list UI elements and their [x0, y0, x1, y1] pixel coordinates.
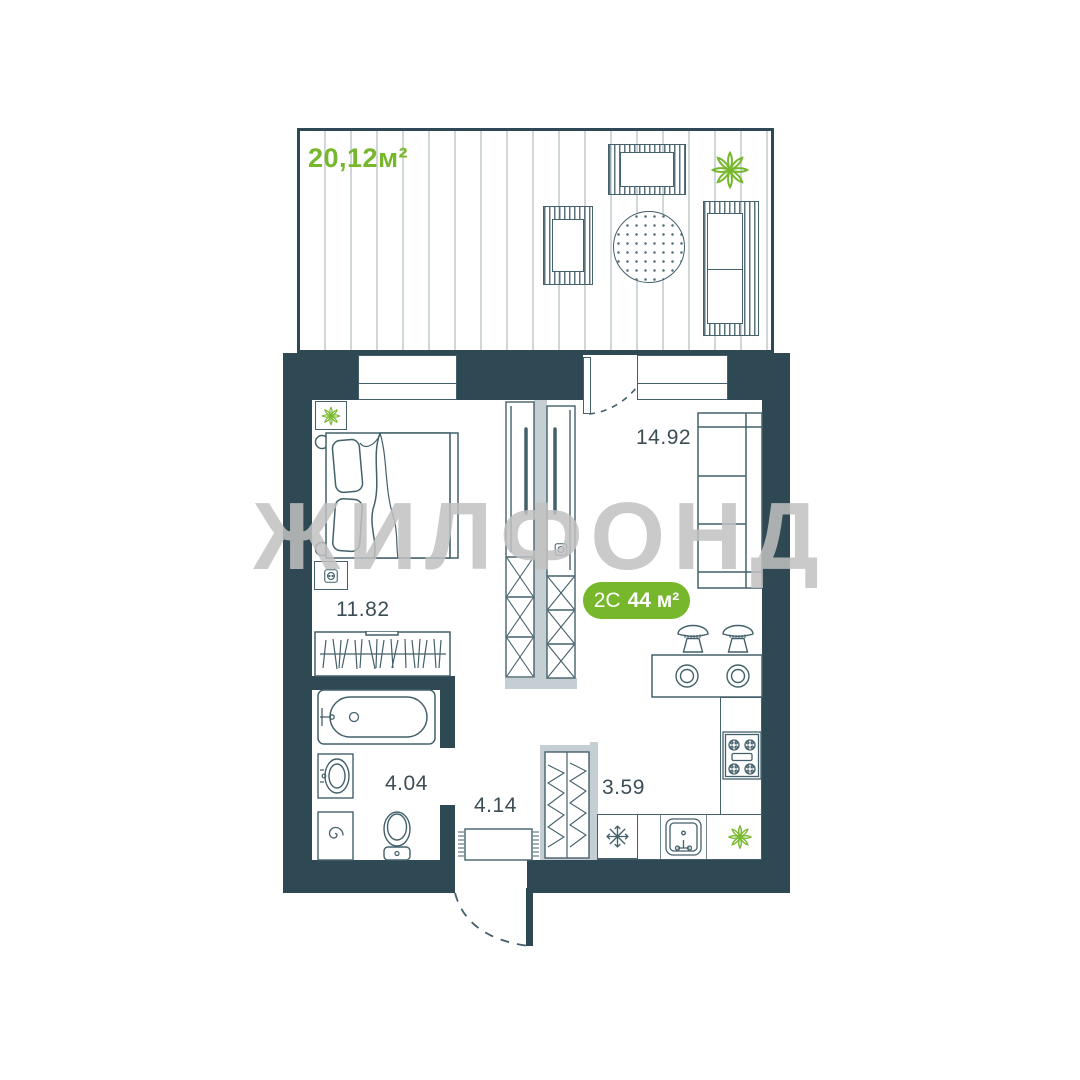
double-bed — [314, 429, 460, 562]
entrance-door-swing-arc — [437, 886, 537, 952]
toilet — [379, 808, 415, 862]
bathroom-area-label: 4.04 — [385, 772, 428, 796]
kitchen-bottom-counter — [597, 814, 762, 860]
washing-machine — [317, 811, 354, 861]
plant-icon — [726, 823, 754, 851]
open-hanger-wardrobe — [314, 631, 451, 677]
sofa — [697, 412, 763, 589]
terrace-area: 20,12м² — [297, 128, 774, 353]
nightstand — [314, 561, 348, 590]
bar-stool — [676, 623, 710, 653]
bathroom-sink — [317, 753, 354, 799]
stove-icon — [722, 731, 762, 780]
living-kitchen-area-label: 14.92 — [636, 426, 691, 450]
terrace-area-label: 20,12м² — [308, 143, 408, 174]
kitchen-area-label: 3.59 — [602, 776, 645, 800]
hallway-area-label: 4.14 — [474, 794, 517, 818]
doormat — [457, 827, 540, 862]
terrace-round-table — [613, 211, 685, 283]
apartment-type-badge: 2С 44 м² — [583, 582, 690, 619]
chair-seat — [552, 219, 584, 272]
plant-icon — [320, 405, 342, 427]
terrace-sofa — [703, 201, 759, 336]
kitchen-sink-icon — [660, 815, 707, 860]
socket-icon — [324, 569, 338, 583]
sofa-seat — [707, 213, 743, 324]
wardrobe-right — [546, 405, 576, 679]
snowflake-icon — [604, 823, 631, 850]
partition-corridor-base — [505, 678, 577, 689]
bar-stool — [721, 623, 755, 653]
wall-bedroom-bathroom — [312, 676, 455, 690]
terrace-lounge-chair-top — [608, 144, 686, 195]
badge-layout-type: 2С — [594, 589, 621, 613]
fridge — [597, 814, 638, 859]
bedroom-area-label: 11.82 — [336, 598, 390, 622]
floorplan-canvas: 20,12м² — [0, 0, 1080, 1080]
bedside-table — [315, 401, 347, 430]
balcony-door-swing-arc — [586, 360, 642, 418]
bathroom-door-opening — [439, 748, 456, 805]
bathtub — [317, 689, 436, 745]
kitchen-window — [637, 355, 728, 400]
wardrobe-left — [505, 401, 535, 678]
bedroom-window — [358, 355, 457, 400]
badge-total-area: 44 м² — [628, 589, 680, 613]
terrace-lounge-chair-left — [543, 206, 593, 285]
plant-icon — [708, 148, 752, 192]
bar-counter — [651, 654, 763, 698]
coat-closet — [544, 751, 590, 859]
chair-seat — [620, 152, 674, 187]
